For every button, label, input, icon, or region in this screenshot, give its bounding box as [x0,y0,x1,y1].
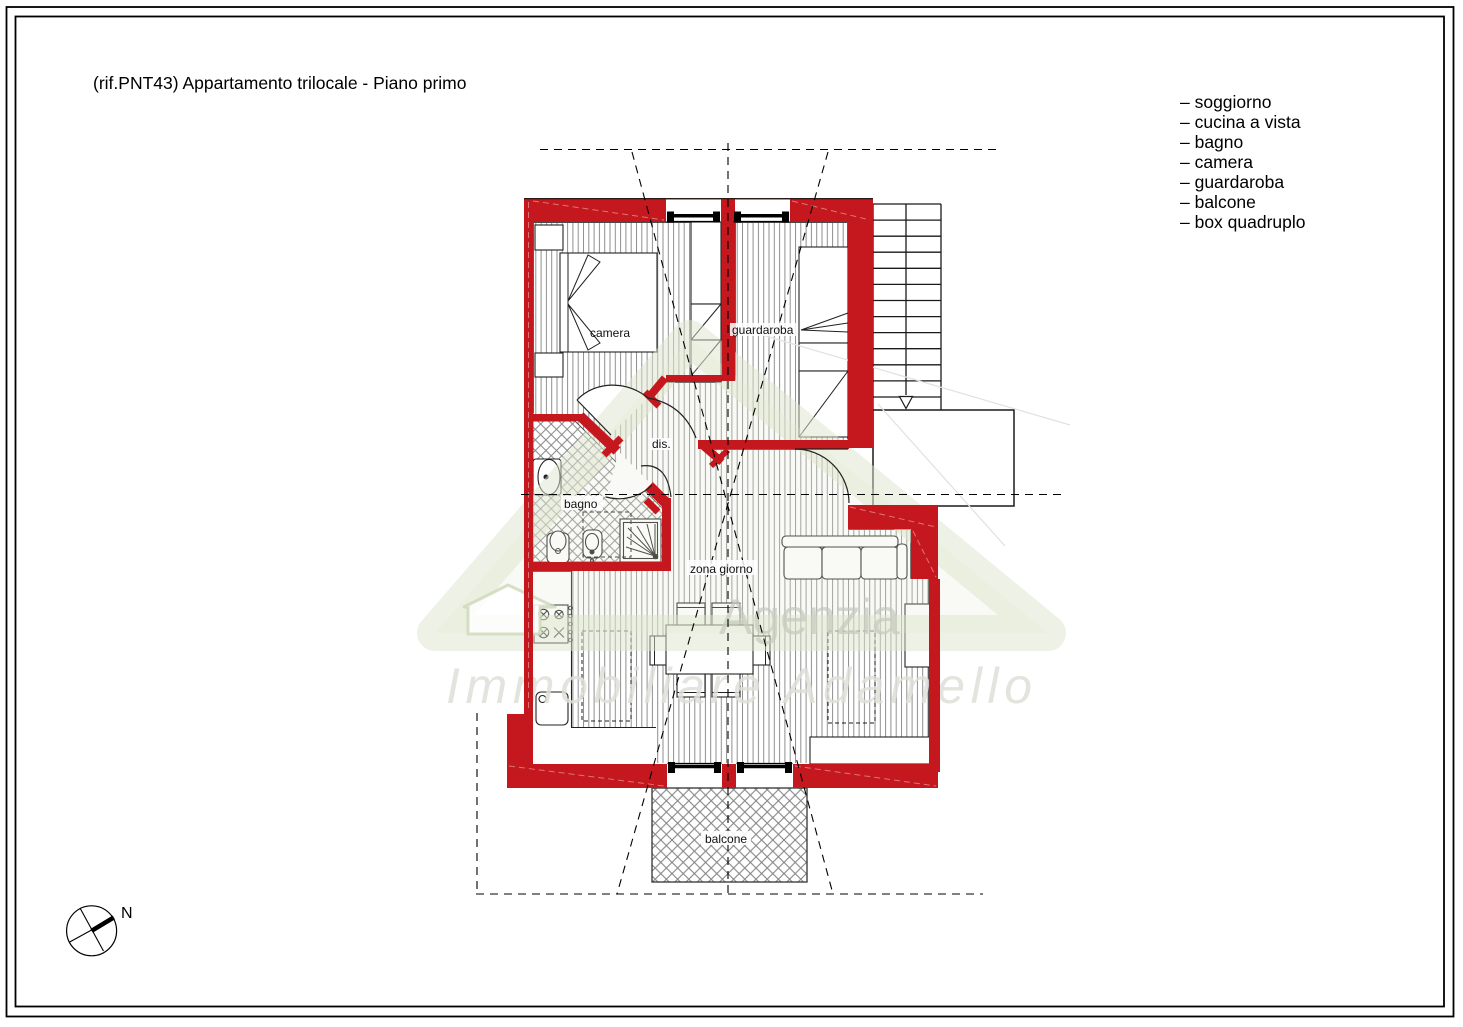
svg-text:– cucina a vista: – cucina a vista [1180,112,1301,132]
svg-text:N: N [121,905,133,922]
svg-text:– guardaroba: – guardaroba [1180,172,1284,192]
svg-text:– bagno: – bagno [1180,132,1243,152]
svg-text:(rif.PNT43) Appartamento trilo: (rif.PNT43) Appartamento trilocale - Pia… [93,73,466,93]
svg-text:dis.: dis. [652,437,671,451]
svg-text:Immobiliare Adamello: Immobiliare Adamello [446,658,1032,714]
svg-text:balcone: balcone [705,832,747,846]
svg-text:zona giorno: zona giorno [690,562,753,576]
svg-text:bagno: bagno [564,497,598,511]
svg-text:– box quadruplo: – box quadruplo [1180,212,1306,232]
svg-text:guardaroba: guardaroba [732,323,794,337]
svg-text:– soggiorno: – soggiorno [1180,92,1271,112]
svg-text:camera: camera [590,326,630,340]
svg-text:– camera: – camera [1180,152,1253,172]
svg-text:Agenzia: Agenzia [719,589,900,645]
svg-text:– balcone: – balcone [1180,192,1256,212]
